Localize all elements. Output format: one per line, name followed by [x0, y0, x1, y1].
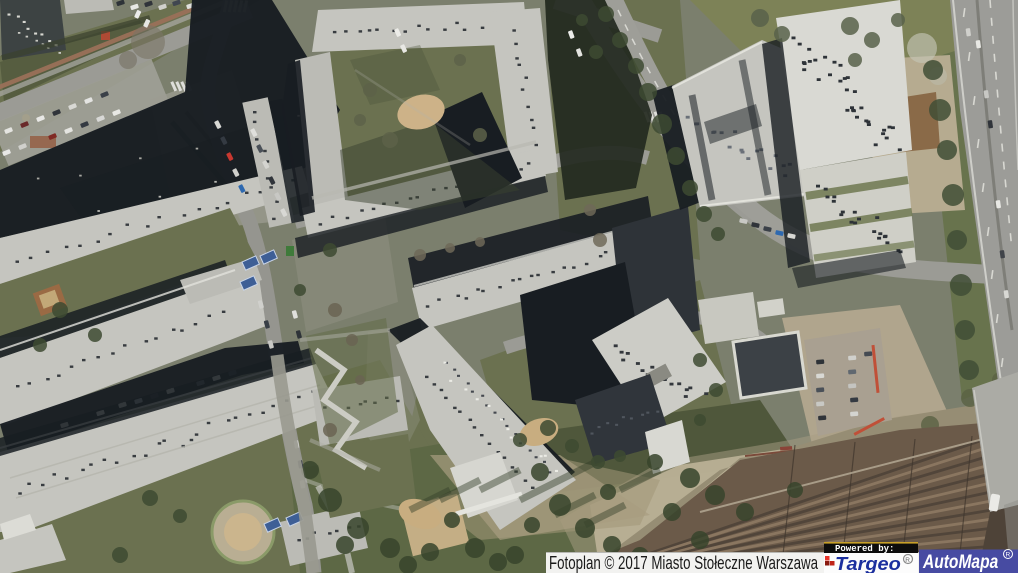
svg-text:Targeo: Targeo	[835, 555, 901, 573]
svg-text:AutoMapa: AutoMapa	[922, 551, 998, 573]
svg-text:R: R	[905, 557, 910, 564]
svg-text:R: R	[1006, 552, 1011, 559]
svg-text:Powered by:: Powered by:	[835, 544, 894, 554]
svg-text:Fotoplan © 2017 Miasto Stołecz: Fotoplan © 2017 Miasto Stołeczne Warszaw…	[549, 553, 818, 573]
